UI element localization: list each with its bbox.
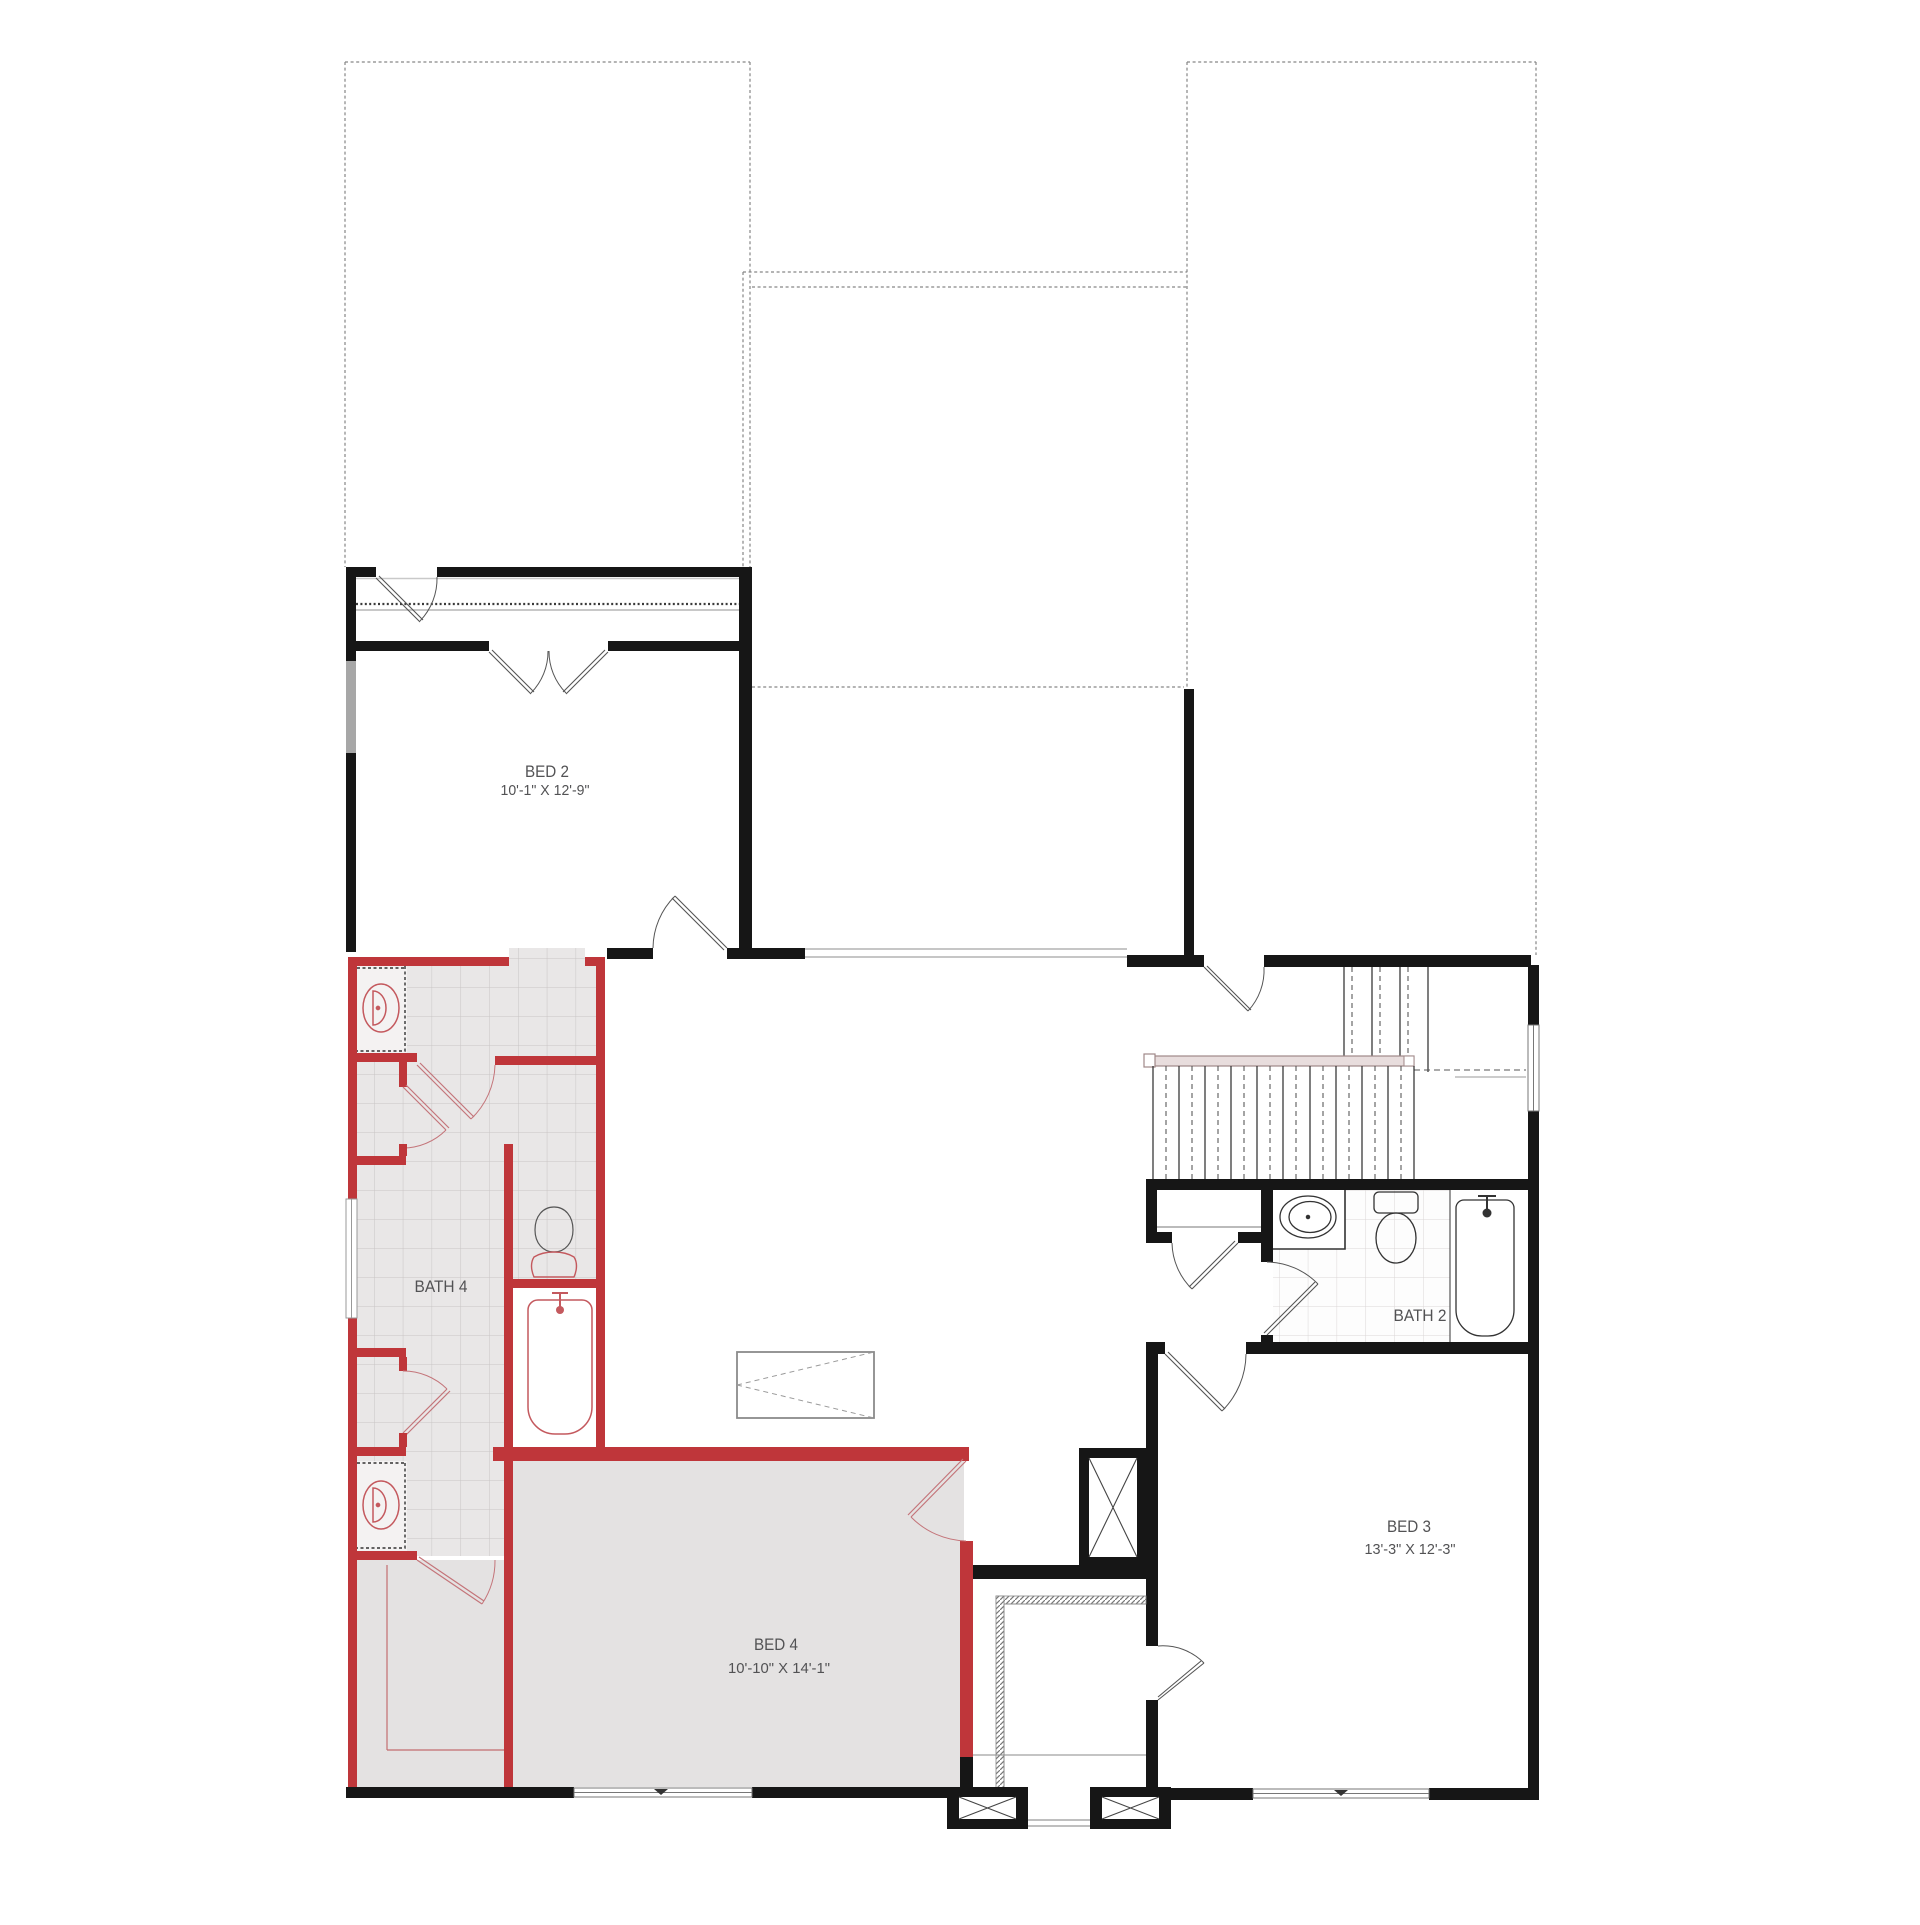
- svg-text:BED 2: BED 2: [525, 762, 569, 781]
- svg-text:13'-3" X 12'-3": 13'-3" X 12'-3": [1365, 1541, 1456, 1558]
- svg-text:BED 4: BED 4: [754, 1635, 798, 1654]
- svg-text:10'-10" X 14'-1": 10'-10" X 14'-1": [728, 1660, 830, 1677]
- svg-text:BATH 4: BATH 4: [415, 1277, 468, 1296]
- svg-text:BATH 2: BATH 2: [1394, 1306, 1447, 1325]
- svg-text:10'-1" X 12'-9": 10'-1" X 12'-9": [501, 782, 590, 799]
- svg-text:BED 3: BED 3: [1387, 1517, 1431, 1536]
